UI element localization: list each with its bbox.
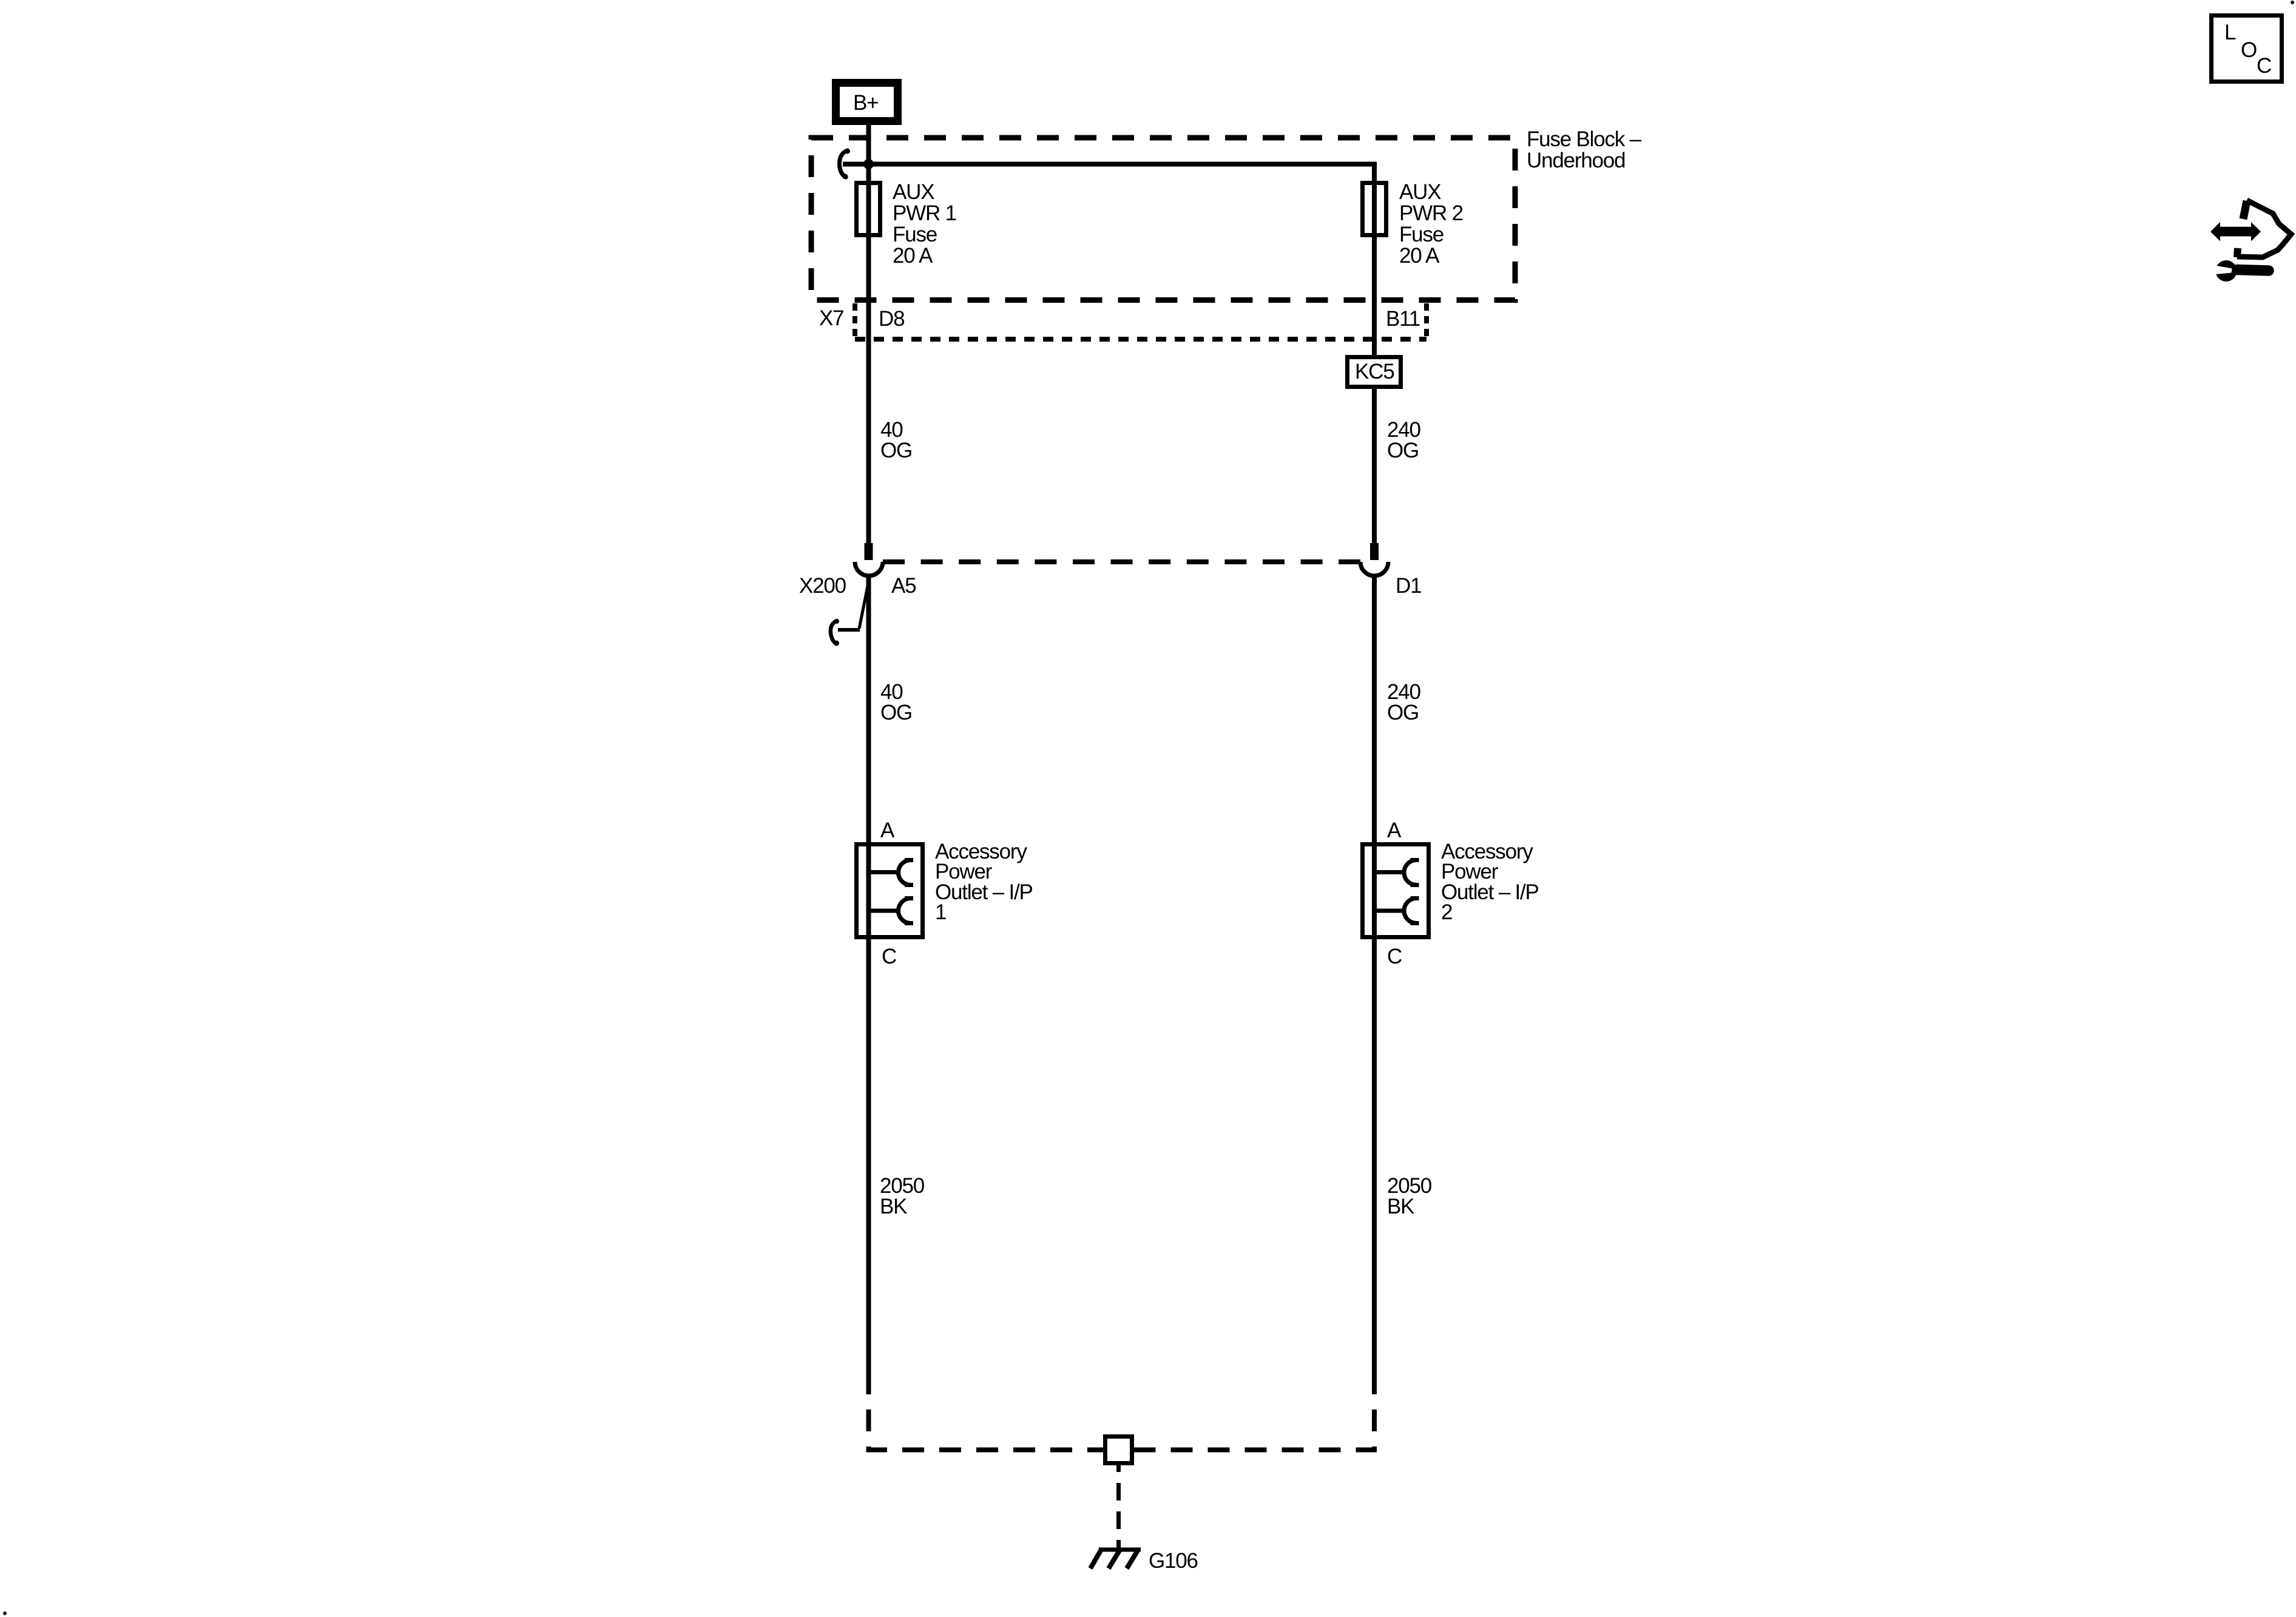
- svg-text:A: A: [880, 819, 895, 842]
- svg-text:OG: OG: [1387, 439, 1419, 462]
- svg-text:X7: X7: [819, 306, 843, 330]
- svg-text:D8: D8: [879, 307, 904, 331]
- svg-text:1: 1: [935, 900, 946, 924]
- svg-text:Fuse: Fuse: [893, 223, 937, 246]
- svg-text:B11: B11: [1386, 307, 1420, 331]
- svg-text:O: O: [2241, 38, 2257, 62]
- svg-text:OG: OG: [1387, 701, 1419, 724]
- svg-text:Underhood: Underhood: [1527, 149, 1625, 172]
- svg-text:Fuse: Fuse: [1399, 223, 1443, 246]
- svg-text:Fuse Block –: Fuse Block –: [1527, 127, 1642, 151]
- svg-text:A: A: [1387, 819, 1402, 842]
- svg-text:B+: B+: [853, 91, 878, 115]
- svg-text:X200: X200: [799, 574, 846, 598]
- svg-text:AUX: AUX: [1399, 180, 1441, 204]
- svg-text:A5: A5: [891, 574, 916, 598]
- svg-text:L: L: [2224, 21, 2236, 44]
- svg-text:20 A: 20 A: [1399, 244, 1440, 268]
- svg-text:C: C: [2257, 54, 2271, 78]
- svg-text:C: C: [882, 945, 896, 968]
- svg-text:PWR 1: PWR 1: [893, 201, 956, 225]
- svg-text:D1: D1: [1396, 574, 1421, 598]
- svg-text:BK: BK: [880, 1195, 907, 1218]
- svg-text:OG: OG: [880, 439, 912, 462]
- svg-text:Outlet – I/P: Outlet – I/P: [935, 880, 1033, 904]
- svg-text:AUX: AUX: [893, 180, 934, 204]
- svg-text:PWR 2: PWR 2: [1399, 201, 1463, 225]
- svg-text:OG: OG: [880, 701, 912, 724]
- svg-text:Outlet – I/P: Outlet – I/P: [1441, 880, 1539, 904]
- svg-text:G106: G106: [1149, 1549, 1198, 1573]
- svg-text:BK: BK: [1387, 1195, 1414, 1218]
- svg-text:2: 2: [1441, 900, 1452, 924]
- svg-text:20 A: 20 A: [893, 244, 933, 268]
- svg-text:C: C: [1387, 945, 1402, 968]
- svg-text:KC5: KC5: [1355, 360, 1394, 383]
